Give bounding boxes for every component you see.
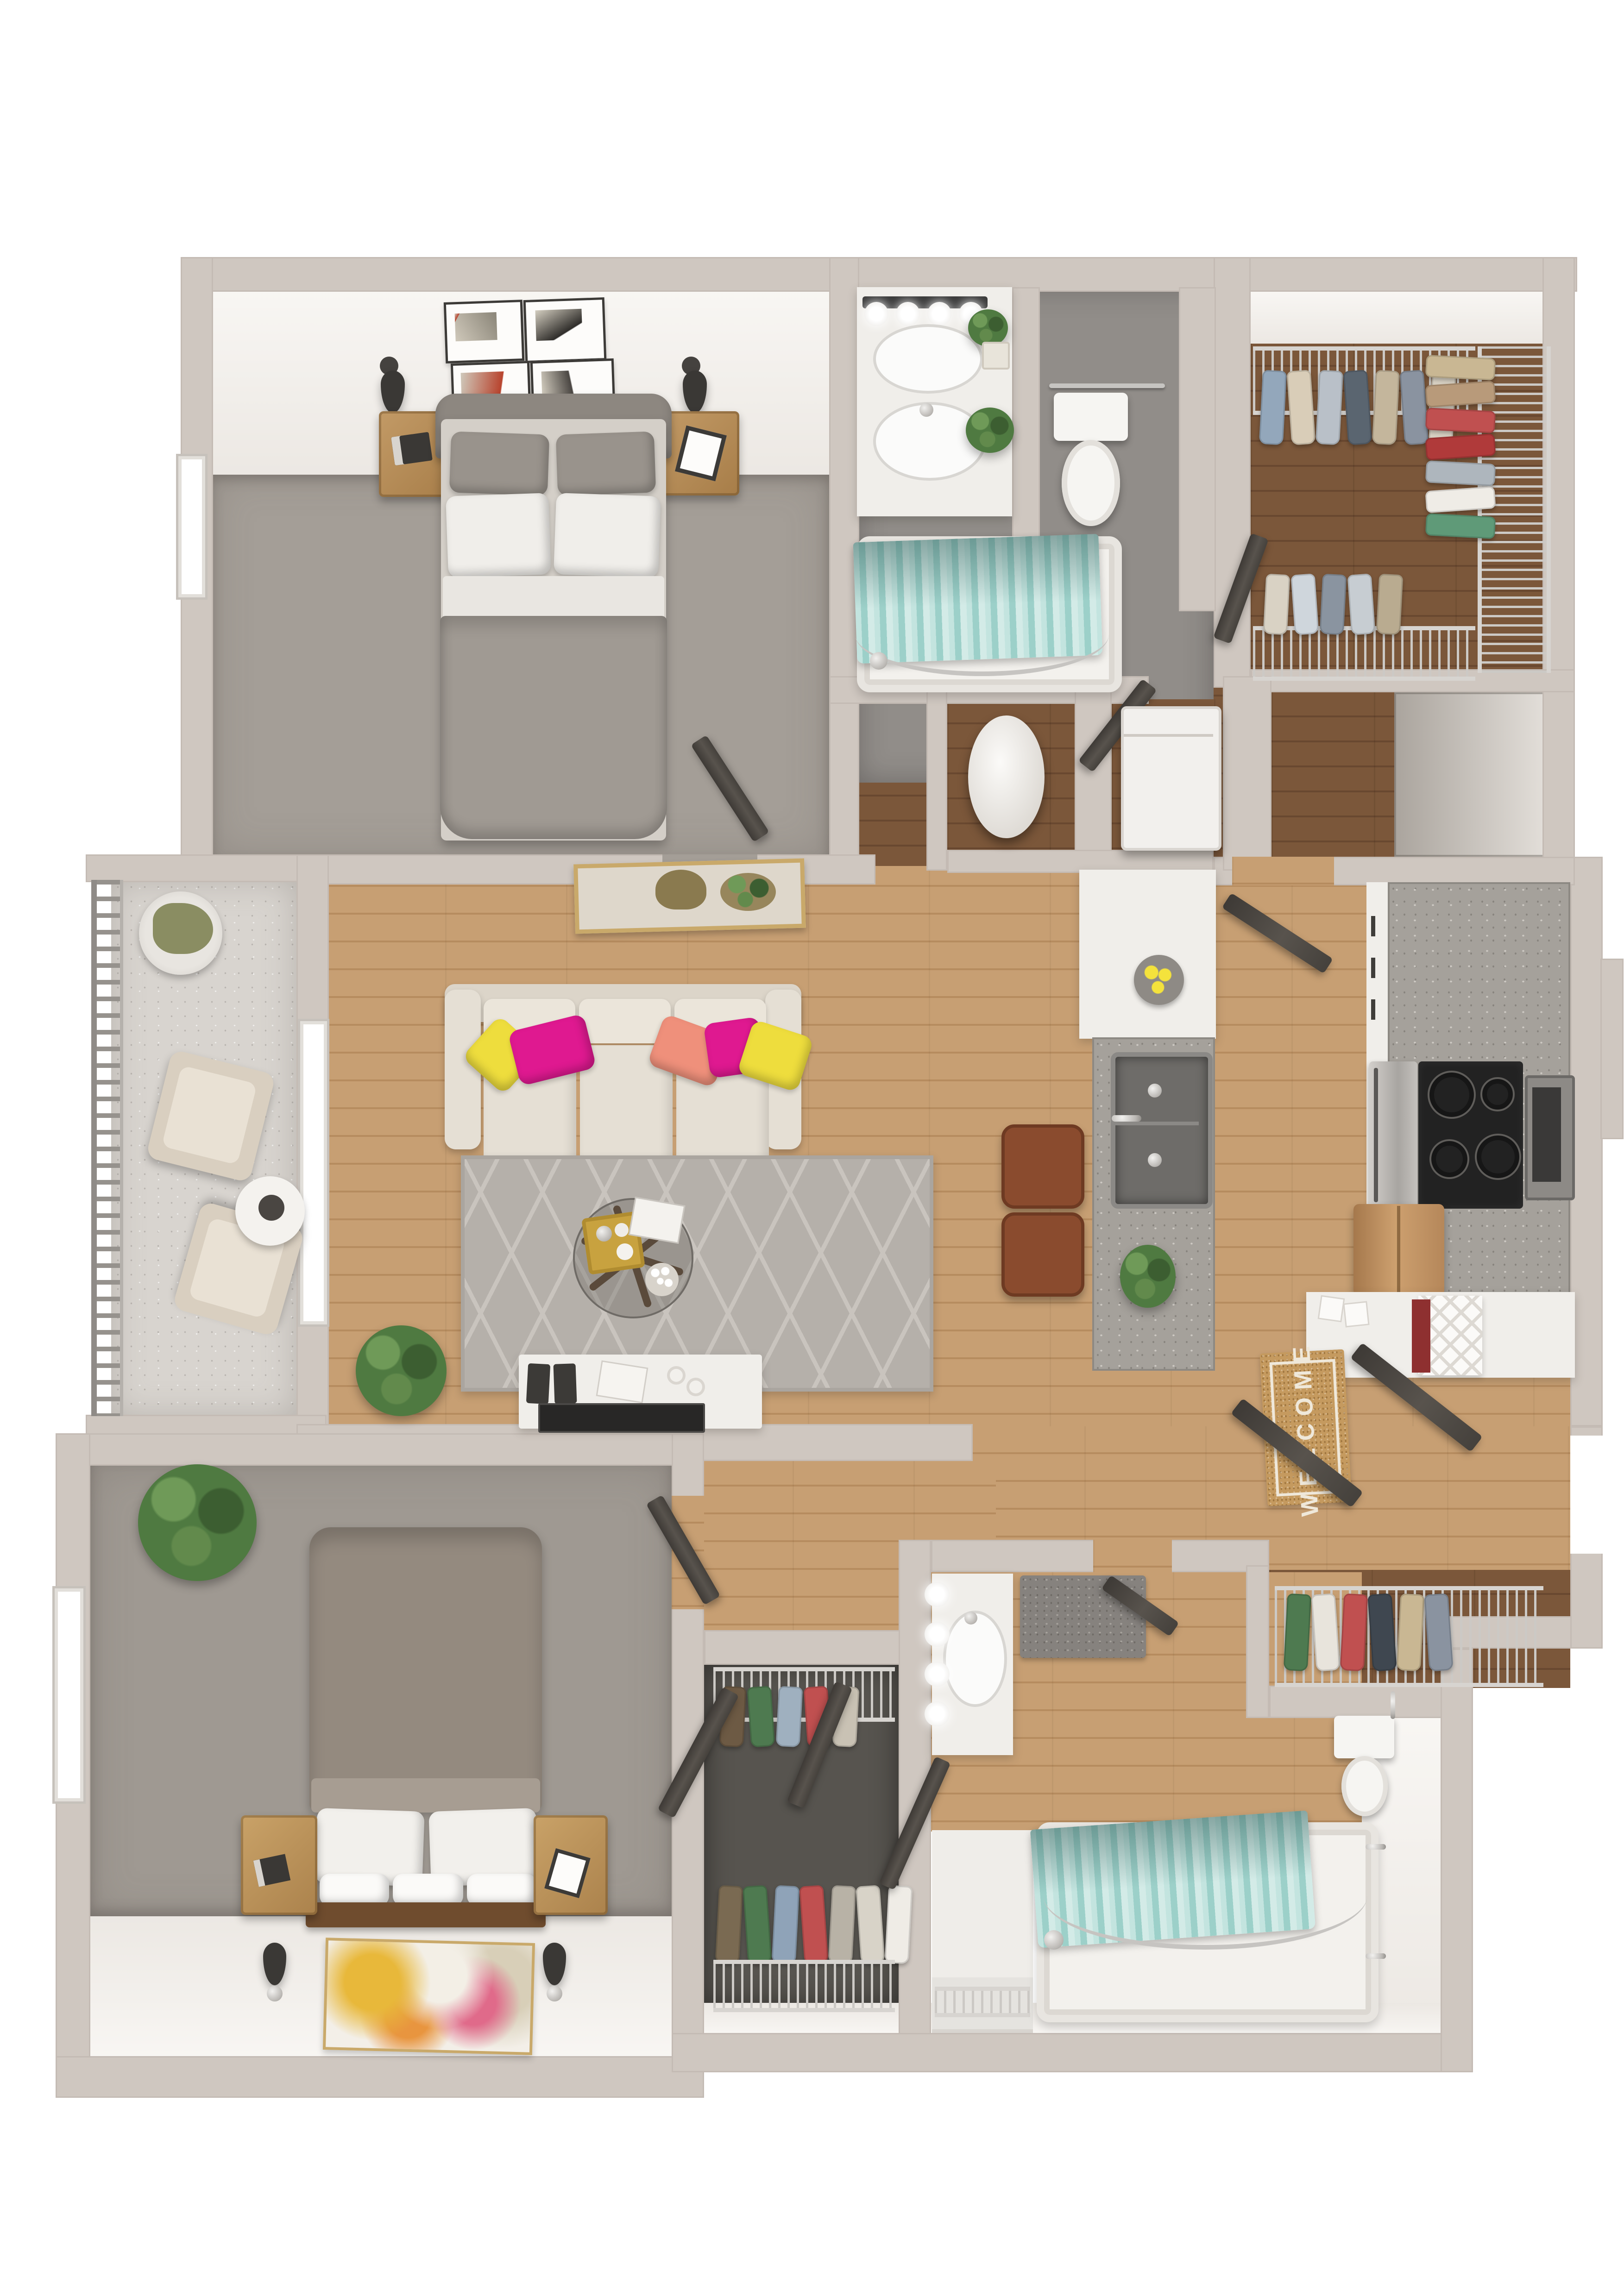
clothes-item [1397,1593,1425,1671]
clothes-item [1343,370,1372,445]
clothes-item [1425,408,1496,433]
wall-segment [1179,287,1216,611]
bed2-pillow-small [467,1874,536,1906]
speaker [526,1363,550,1404]
sink-faucet [919,403,933,417]
palm-painting-motif [720,873,776,911]
counter-dishes [1343,1301,1369,1327]
towel-bar [1049,383,1165,388]
hanging-clothes-row [1265,574,1468,634]
toilet-bowl [1062,440,1120,526]
living-room-plant [356,1325,447,1416]
cabinet-handle [1371,916,1375,936]
linen-wire-shelf [935,1987,1030,2017]
wall-segment [704,1630,931,1665]
bed2-pillow-small [320,1874,389,1906]
microwave-glass [1532,1087,1561,1182]
book [391,432,433,466]
washer-dryer [1121,706,1221,851]
vanity-plant [966,408,1014,453]
bar-stool [1001,1212,1084,1297]
toilet2-supply-pipe [1391,1691,1395,1719]
clothes-item [1311,1593,1340,1671]
living-room-window [300,1021,327,1324]
bed-pillow-gray [449,431,549,496]
console-decor [686,1378,705,1396]
vanity2-sink [943,1611,1007,1707]
clothes-item [1425,355,1496,381]
wall-segment [1075,676,1112,871]
vanity-bulb [925,1662,950,1687]
cooktop-burner [1480,1077,1515,1111]
bed2-pillow-small [393,1874,463,1906]
toilet2-tank [1334,1716,1394,1758]
clothes-item [1425,513,1496,539]
tub-handle [1366,1844,1386,1850]
tub-faucet [870,652,888,670]
sconce-base [547,1986,562,2001]
washer-dryer-seam [1124,734,1213,737]
wall-segment [1223,676,1272,871]
water-heater [968,715,1045,838]
clothes-item [1284,1593,1312,1671]
bedroom2-window [55,1588,83,1801]
clothes-item [1424,1593,1453,1671]
flat-tv [538,1403,705,1433]
vanity-bulb [896,302,920,326]
counter-plant [1120,1245,1176,1308]
clothes-item [1291,573,1319,635]
sink-faucet [964,1612,977,1625]
wall-art-frame [523,297,607,363]
tray-ornament [615,1223,629,1237]
soap-tray [982,342,1010,370]
toilet2-bowl [1341,1756,1388,1816]
kitchen-sink [1111,1052,1213,1209]
bed-pillow-gray [556,431,656,496]
cabinet-handle [1371,958,1375,978]
kitchen-door-gap [1232,857,1334,885]
tray-ornament [617,1243,633,1260]
abstract-painting [323,1938,535,2055]
counter-dishes [1318,1295,1345,1323]
clothes-item [1376,574,1404,635]
console-decor [667,1366,686,1385]
clothes-item [1320,574,1347,635]
clothes-item [1372,370,1400,445]
bed2-frame [306,1902,546,1927]
balcony-top-wall [86,854,327,882]
sink-faucet [1112,1115,1141,1122]
clothes-item [1399,370,1429,445]
toilet-tank [1054,393,1128,441]
bed-sheet-fold [443,576,664,619]
oven-handle [1374,1068,1378,1202]
sconce-base [267,1986,283,2001]
bedroom1-window [178,456,205,597]
vanity-bulb [925,1701,950,1726]
coat-closet-clothes [1285,1594,1536,1671]
welcome-mat-text: WELCOME [1287,1338,1324,1517]
wall-segment [181,257,1577,292]
sink-drain [1148,1084,1162,1098]
clothes-item [1425,381,1496,408]
clothes-item [1367,1593,1397,1671]
closet2-wire-shelf-bottom [713,1960,895,2012]
side-table-bowl [258,1195,284,1221]
wall-art-frame [444,300,525,364]
clothes-item [772,1885,800,1964]
clothes-item [743,1885,772,1964]
coffee-table [572,1192,692,1324]
clothes-item [828,1885,856,1964]
vanity-bulb [925,1582,950,1607]
lemon-bowl [1134,955,1184,1005]
clothes-item [1340,1593,1368,1671]
walkin-closet-wall-face [1251,292,1542,344]
clothes-item [1425,486,1496,513]
bedroom2-plant [138,1464,257,1581]
tub-handle [1366,1953,1386,1959]
clothes-item [776,1686,803,1748]
clothes-item [1263,574,1290,635]
refrigerator-seam [1397,1206,1400,1294]
wall-segment [56,1433,676,1466]
peninsula-bar-top [1079,870,1216,1039]
stair-hall-floor [1272,692,1401,857]
clothes-item [856,1885,885,1964]
cooktop-burner [1428,1071,1476,1119]
clothes-item [1425,433,1496,460]
bed-pillow-white [554,493,661,578]
wall-segment [672,2033,1473,2072]
wall-segment [926,676,947,871]
console-magazine [596,1361,648,1404]
clothes-item [885,1885,913,1964]
clothes-item [1259,370,1287,445]
tray-ornament [596,1226,612,1242]
wall-segment [1600,959,1624,1139]
clothes-item [1347,573,1376,635]
sink-drain [1148,1153,1162,1167]
clothes-item [799,1885,829,1964]
clothes-item [715,1885,743,1964]
wall-segment [1246,1565,1269,1718]
wall-segment [1441,1649,1473,2072]
vanity-bulb [927,302,951,326]
sink-divider [1115,1122,1199,1125]
bar-stool [1001,1124,1084,1209]
vanity-bulb [925,1622,950,1647]
cactus [153,903,213,954]
shower-head [1044,1930,1064,1950]
clothes-item [747,1686,775,1747]
clothes-item [1286,370,1316,445]
bed2-duvet [309,1527,542,1811]
vanity-plant [968,309,1008,346]
cooktop-burner [1429,1139,1469,1179]
wine-bottles [1412,1299,1430,1373]
clothes-item [1316,370,1343,445]
balcony-railing [91,880,123,1416]
front-door-opening[interactable] [1570,1436,1603,1554]
flower-bunch [645,1263,679,1296]
clothes-item [1425,460,1496,486]
floor-plan-3d-top-view: WELCOME [0,0,1624,2296]
speaker [554,1363,577,1404]
wall-segment [1570,857,1603,1426]
wall-segment [56,2056,704,2098]
closet2-clothes-row [717,1886,893,1964]
cabinet-handle [1371,999,1375,1020]
bed-duvet [440,616,667,839]
bathroom2-door-gap [1093,1540,1172,1572]
closet2-clothes-row [721,1687,892,1747]
bed-pillow-white [446,493,551,578]
palm-painting-motif [655,870,706,910]
cooktop-burner [1475,1134,1521,1180]
vanity-bulb [864,302,888,326]
vanity-sink-mirror [873,324,983,394]
bed2-sheet-fold [311,1778,540,1813]
